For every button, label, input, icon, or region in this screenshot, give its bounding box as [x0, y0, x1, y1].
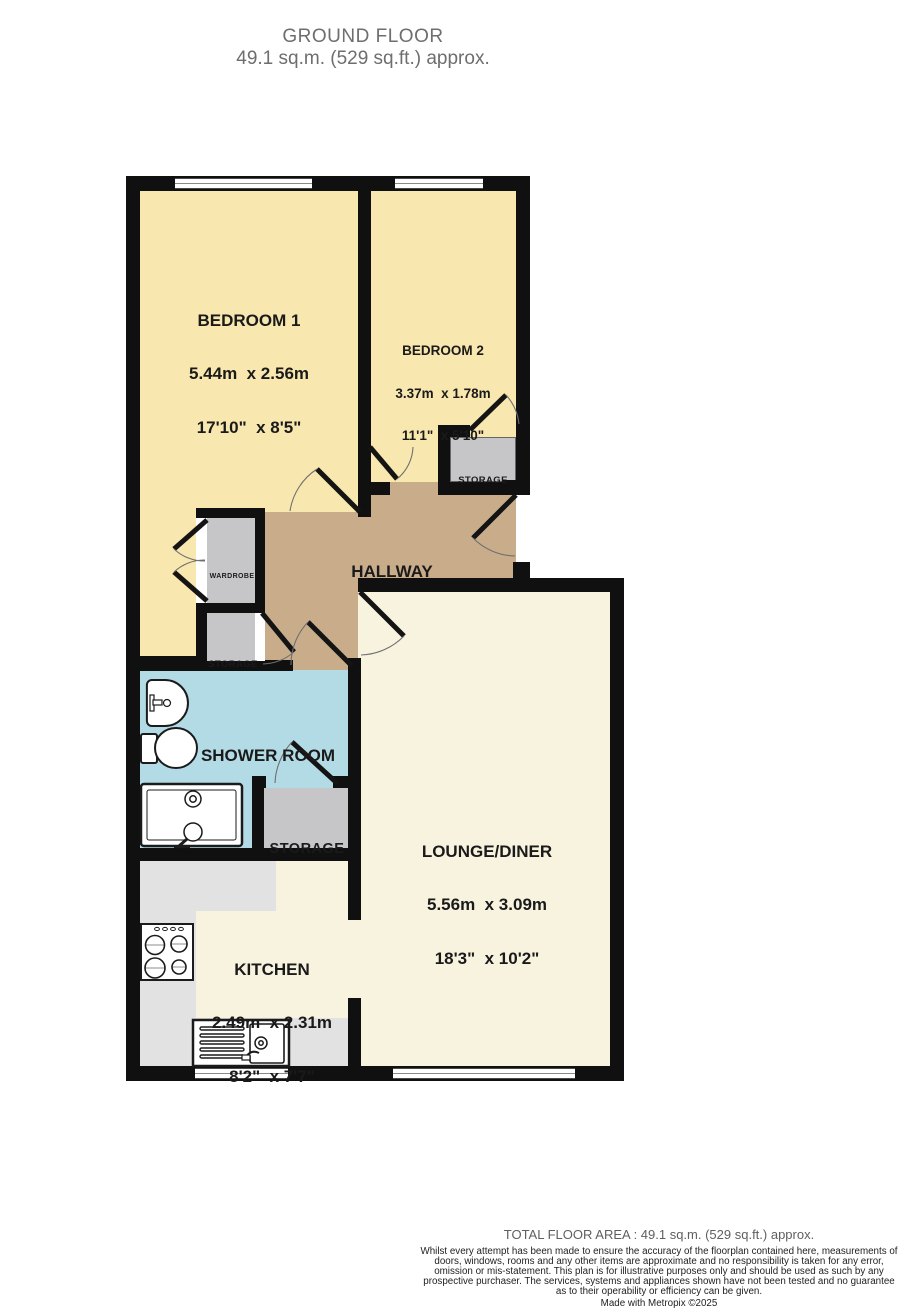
- room-name: HALLWAY: [351, 563, 433, 581]
- kitchen-counter: [196, 861, 276, 911]
- wall-lounge-right: [610, 578, 624, 1081]
- room-dims-metric: 5.56m x 3.09m: [422, 896, 552, 914]
- lounge-window: [393, 1068, 575, 1079]
- bedroom2-label: BEDROOM 2 3.37m x 1.78m 11'1" x 5'10": [395, 316, 490, 458]
- kitchen-lounge-opening: [348, 920, 361, 998]
- room-dims-metric: 5.44m x 2.56m: [189, 365, 309, 383]
- room-name: BEDROOM 1: [189, 312, 309, 330]
- wall-shower-storage: [252, 776, 264, 848]
- floor-name: GROUND FLOOR: [163, 26, 563, 48]
- wall-bedroom-divider: [358, 176, 371, 517]
- bedroom1-label: BEDROOM 1 5.44m x 2.56m 17'10" x 8'5": [189, 276, 309, 454]
- room-dims-imperial: 11'1" x 5'10": [395, 429, 490, 443]
- room-dims-metric: 2.49m x 2.31m: [212, 1014, 332, 1032]
- lounge-diner-label: LOUNGE/DINER 5.56m x 3.09m 18'3" x 10'2": [422, 807, 552, 985]
- room-dims-imperial: 17'10" x 8'5": [189, 419, 309, 437]
- bedroom2-storage-label: STORAGE: [458, 456, 508, 496]
- shower-room-label: SHOWER ROOM: [201, 711, 335, 782]
- wall-bedroom1-bottom: [126, 656, 196, 671]
- total-floor-area: TOTAL FLOOR AREA : 49.1 sq.m. (529 sq.ft…: [420, 1227, 898, 1242]
- bedroom2-window: [395, 178, 483, 189]
- bedroom1-floor: [140, 512, 196, 656]
- hallway-floor: [265, 578, 358, 670]
- shower-storage-label: STORAGE: [270, 812, 345, 873]
- disclaimer-text: Whilst every attempt has been made to en…: [420, 1247, 898, 1297]
- wardrobe-label: WARDROBE: [210, 558, 255, 587]
- room-dims-imperial: 18'3" x 10'2": [422, 950, 552, 968]
- wall-frontdoor-stub: [513, 562, 530, 578]
- floor-area: 49.1 sq.m. (529 sq.ft.) approx.: [163, 48, 563, 70]
- room-name: SHOWER ROOM: [201, 747, 335, 765]
- wall-lounge-left: [348, 658, 361, 920]
- wall-shower-storage: [333, 776, 348, 788]
- room-name: KITCHEN: [212, 961, 332, 979]
- metropix-credit: Made with Metropix ©2025: [420, 1298, 898, 1309]
- kitchen-label: KITCHEN 2.49m x 2.31m 8'2" x 7'7": [212, 925, 332, 1103]
- room-dims-imperial: 8'2" x 7'7": [212, 1068, 332, 1086]
- room-dims-metric: 3.37m x 1.78m: [395, 387, 490, 401]
- room-name: LOUNGE/DINER: [422, 843, 552, 861]
- footer: TOTAL FLOOR AREA : 49.1 sq.m. (529 sq.ft…: [420, 1227, 898, 1309]
- room-name: BEDROOM 2: [395, 344, 490, 358]
- wall-lounge-left: [348, 998, 361, 1066]
- wall-left: [126, 176, 140, 1081]
- hallway-floor: [438, 495, 516, 512]
- floorplan-page: { "title": { "line1": "GROUND FLOOR", "l…: [0, 0, 900, 1311]
- bedroom1-window: [175, 178, 312, 189]
- plan-title: GROUND FLOOR 49.1 sq.m. (529 sq.ft.) app…: [163, 26, 563, 70]
- wall-bedroom2-hall: [358, 482, 390, 495]
- wall-lobby-bar: [265, 660, 293, 671]
- hall-storage-label: STORAGE: [208, 640, 258, 680]
- wall-wardrobe: [255, 508, 265, 613]
- wall-right-upper: [516, 176, 530, 495]
- hallway-label: HALLWAY: [351, 527, 433, 598]
